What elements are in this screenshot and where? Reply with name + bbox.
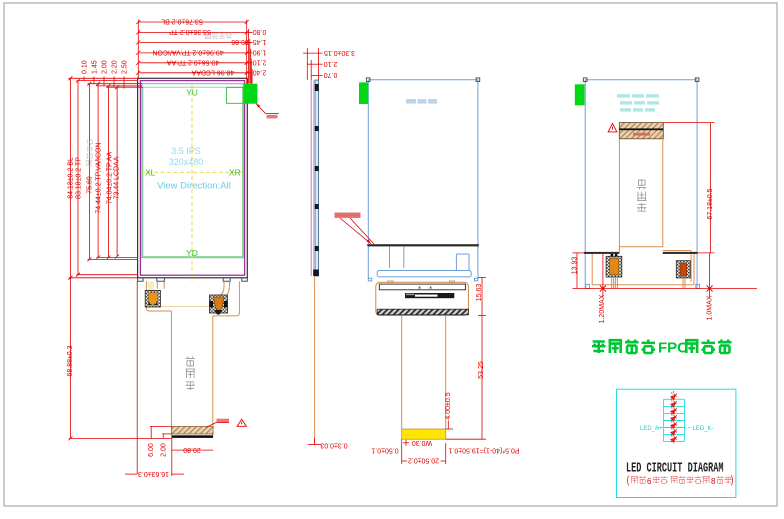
svg-text:74.04±0.2 TP.AA: 74.04±0.2 TP.AA (106, 152, 113, 205)
svg-text:84.18±0.2 BL: 84.18±0.2 BL (68, 157, 75, 199)
svg-text:15.63: 15.63 (476, 284, 483, 302)
svg-text:3.5 IPS: 3.5 IPS (171, 146, 201, 156)
svg-text:67.18±0.5: 67.18±0.5 (707, 188, 714, 219)
svg-text:75.69: 75.69 (87, 176, 94, 194)
svg-text:0.3±0.03: 0.3±0.03 (320, 442, 347, 449)
svg-text:320x480: 320x480 (169, 157, 204, 167)
svg-text:0.50±0.1: 0.50±0.1 (371, 446, 398, 453)
svg-text:13.93: 13.93 (571, 257, 578, 275)
svg-text:2.10: 2.10 (324, 60, 338, 67)
svg-text:LED CIRCUIT DIAGRAM: LED CIRCUIT DIAGRAM (626, 462, 724, 477)
svg-text:P0.5*(40-1)=19.50±0.1: P0.5*(40-1)=19.50±0.1 (448, 446, 519, 453)
svg-text:1.45: 1.45 (253, 38, 267, 45)
svg-text:74.44±0.2 TP.VA/ICON: 74.44±0.2 TP.VA/ICON (95, 142, 102, 213)
svg-text:1.0MAX: 1.0MAX (707, 295, 714, 320)
svg-text:XL: XL (145, 168, 156, 178)
svg-text:2.10: 2.10 (253, 59, 267, 66)
svg-text:4.00±0.5: 4.00±0.5 (445, 392, 452, 419)
svg-text:2.20: 2.20 (112, 60, 119, 74)
svg-text:1.45: 1.45 (92, 60, 99, 74)
svg-text:2.00: 2.00 (161, 443, 168, 457)
svg-text:2.40: 2.40 (253, 69, 267, 76)
svg-text:LED_A+: LED_A+ (640, 426, 663, 432)
svg-text:YU: YU (186, 88, 198, 98)
svg-text:View Direction:All: View Direction:All (157, 181, 231, 192)
svg-text:6.00: 6.00 (148, 443, 155, 457)
svg-text:0.70: 0.70 (324, 71, 338, 78)
svg-text:49.96±0.2 TP.VA/ICON: 49.96±0.2 TP.VA/ICON (152, 49, 223, 56)
svg-text:49.56±0.2 TP.AA: 49.56±0.2 TP.AA (167, 59, 220, 66)
svg-text:53.36±0.2 TP: 53.36±0.2 TP (169, 28, 211, 35)
svg-text:2.50: 2.50 (122, 60, 129, 74)
svg-text:83.18±0.2 TP: 83.18±0.2 TP (75, 157, 82, 199)
svg-text:8: 8 (711, 477, 716, 486)
svg-text:50.86: 50.86 (231, 38, 249, 45)
svg-text:0.80: 0.80 (253, 28, 267, 35)
svg-text:68.88±0.3: 68.88±0.3 (67, 345, 74, 376)
svg-text:W0.30: W0.30 (412, 439, 432, 446)
svg-text:2.00: 2.00 (102, 60, 109, 74)
svg-text:XR: XR (229, 168, 241, 178)
svg-text:48.96 LCDAA: 48.96 LCDAA (191, 69, 234, 76)
svg-text:1.90: 1.90 (253, 49, 267, 56)
svg-text:0.10: 0.10 (82, 60, 89, 74)
svg-text:53.76±0.2 BL: 53.76±0.2 BL (161, 18, 203, 25)
svg-text:FPC: FPC (658, 340, 688, 357)
svg-text:YD: YD (186, 248, 198, 258)
svg-text:16.63±0.3: 16.63±0.3 (138, 470, 169, 477)
svg-text:73.44 LCDAA: 73.44 LCDAA (113, 156, 120, 199)
svg-text:6: 6 (647, 477, 652, 486)
svg-text:20.50±0.2: 20.50±0.2 (408, 457, 439, 464)
svg-text:3.30±0.15: 3.30±0.15 (324, 49, 355, 56)
svg-text:1.20MAX: 1.20MAX (599, 294, 606, 323)
svg-text:LED_K-: LED_K- (693, 426, 714, 432)
svg-text:53.25: 53.25 (478, 361, 485, 379)
svg-text:20.80: 20.80 (183, 446, 201, 453)
